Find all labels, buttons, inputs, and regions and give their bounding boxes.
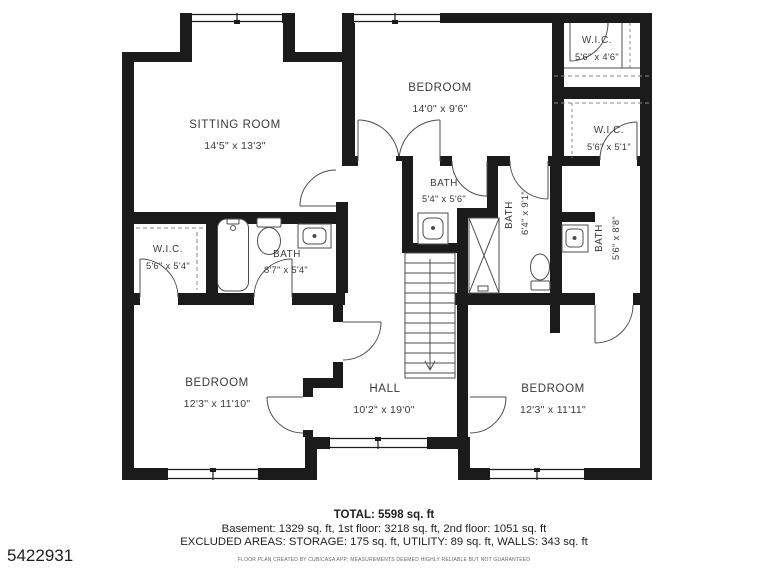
room-dims-hall: 10'2" x 19'0" (353, 404, 415, 416)
wall (637, 156, 652, 166)
room-dims-bedroom-left: 12'3" x 11'10" (184, 398, 251, 410)
wall (487, 156, 498, 208)
wall (336, 224, 348, 293)
wall (455, 293, 595, 305)
wall (122, 52, 134, 480)
room-label-bath-middle: BATH (504, 201, 515, 229)
door-sitting-room (300, 170, 336, 206)
wall (640, 13, 652, 480)
room-dims-bath-left: 8'7" x 5'4" (264, 265, 308, 275)
window (490, 468, 584, 480)
room-label-hall: HALL (369, 383, 400, 395)
wall (122, 293, 140, 305)
room-dims-wic-mid-right: 5'6" x 5'1" (587, 142, 631, 152)
bathtub (218, 219, 249, 291)
toilet (531, 254, 551, 290)
wall (552, 87, 652, 99)
room-label-wic-top-right: W.I.C. (582, 35, 612, 46)
total-area-text: TOTAL: 5598 sq. ft (0, 509, 768, 521)
room-label-wic-left: W.I.C. (153, 244, 183, 255)
sink (298, 224, 331, 248)
room-dims-bath-right: 5'6" x 8'8" (611, 216, 621, 260)
room-label-bath-right: BATH (594, 224, 605, 252)
wall (303, 378, 313, 397)
room-dims-bedroom-right: 12'3" x 11'11" (520, 404, 586, 416)
wall (550, 166, 562, 293)
room-dims-wic-left: 5'6" x 5'4" (146, 261, 190, 271)
window (354, 13, 440, 24)
wall (550, 305, 560, 333)
disclaimer-text: FLOOR PLAN CREATED BY CUBICASA APP; MEAS… (0, 557, 768, 563)
staircase (405, 253, 455, 378)
plan-id-number: 5422931 (7, 546, 73, 566)
room-label-bedroom-top: BEDROOM (408, 82, 472, 94)
door-bath-right (595, 305, 633, 343)
room-dims-bedroom-top: 14'0" x 9'6" (412, 103, 467, 115)
wall (457, 208, 468, 437)
room-label-sitting: SITTING ROOM (189, 119, 281, 131)
door-bedroom-left (267, 397, 303, 433)
room-dims-sitting: 14'5" x 13'3" (204, 140, 266, 152)
door-bedroom-top-right-leaf (399, 120, 440, 161)
room-label-bath-left: BATH (273, 249, 301, 260)
window (330, 437, 427, 449)
wall (342, 13, 355, 166)
door-bedroom-top-left-leaf (358, 120, 399, 161)
window (192, 13, 282, 24)
room-label-bedroom-left: BEDROOM (185, 377, 249, 389)
sink (418, 213, 448, 244)
room-dims-bath-middle: 6'4" x 9'1" (520, 191, 530, 235)
wall (342, 156, 358, 166)
door-bedroom-right (470, 397, 506, 433)
floor-plan-page: SITTING ROOM 14'5" x 13'3" BEDROOM 14'0"… (0, 0, 768, 576)
room-dims-wic-top-right: 5'6" x 4'6" (575, 52, 619, 62)
sink (562, 225, 588, 252)
room-label-bedroom-right: BEDROOM (521, 383, 585, 395)
room-label-bath-center: BATH (430, 178, 458, 189)
wall (440, 156, 452, 166)
wall (402, 156, 413, 253)
wall (550, 212, 595, 222)
wall (303, 430, 313, 437)
wall (336, 202, 348, 212)
room-label-wic-mid-right: W.I.C. (594, 125, 624, 136)
floor-areas-text: Basement: 1329 sq. ft, 1st floor: 3218 s… (0, 523, 768, 535)
double-door-center-tick (396, 156, 402, 161)
room-dims-bath-center: 5'4" x 5'6" (422, 194, 466, 204)
wall (206, 212, 218, 305)
wall (457, 208, 498, 218)
wall (633, 293, 652, 305)
door-hall-closet (343, 322, 381, 360)
wall (333, 302, 343, 322)
window (168, 468, 258, 480)
shower (469, 218, 499, 293)
floor-plan-drawing: SITTING ROOM 14'5" x 13'3" BEDROOM 14'0"… (0, 0, 768, 576)
excluded-areas-text: EXCLUDED AREAS: STORAGE: 175 sq. ft, UTI… (0, 536, 768, 548)
